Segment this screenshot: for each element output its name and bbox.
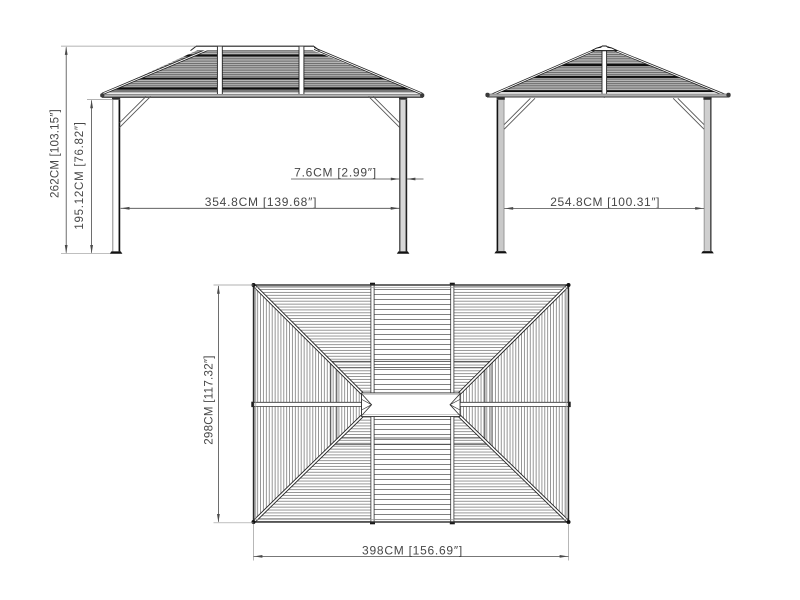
svg-text:254.8CM [100.31″]: 254.8CM [100.31″] xyxy=(550,195,660,209)
svg-text:262CM [103.15″]: 262CM [103.15″] xyxy=(49,109,61,198)
svg-text:298CM [117.32″]: 298CM [117.32″] xyxy=(203,355,215,445)
svg-text:7.6CM [2.99″]: 7.6CM [2.99″] xyxy=(294,165,377,179)
svg-text:354.8CM [139.68″]: 354.8CM [139.68″] xyxy=(205,195,317,209)
svg-text:195.12CM [76.82″]: 195.12CM [76.82″] xyxy=(74,121,86,229)
svg-text:398CM [156.69″]: 398CM [156.69″] xyxy=(362,543,463,557)
